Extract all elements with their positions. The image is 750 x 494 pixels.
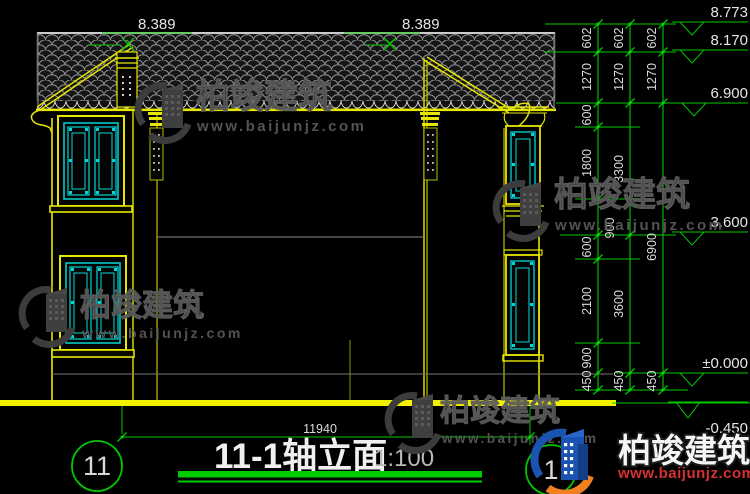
dim-value: 1800	[580, 149, 594, 177]
grid-bubble-label: 11	[83, 451, 111, 481]
elevation-value: 8.170	[710, 32, 748, 49]
brand-name: 柏竣建筑	[618, 432, 750, 469]
window-left-upper	[50, 116, 132, 212]
cad-elevation-drawing: 8.389 8.389	[0, 0, 750, 494]
dim-value: 600	[580, 105, 594, 126]
brand-url: www.baijunjz.com	[617, 465, 750, 482]
drawing-canvas: 8.389 8.389	[0, 0, 750, 494]
dim-value: 602	[580, 28, 594, 49]
dim-value: 450	[612, 371, 626, 392]
watermark-url: www.baijunjz.com	[554, 217, 724, 234]
elevation-value: 8.773	[710, 4, 748, 21]
dim-value: 1270	[612, 63, 626, 91]
total-width-value: 11940	[303, 422, 337, 436]
dim-value: 3600	[612, 290, 626, 318]
watermark-name: 柏竣建筑	[440, 394, 560, 428]
watermark-name: 柏竣建筑	[80, 288, 204, 323]
dim-value: 1270	[580, 63, 594, 91]
dim-value: 450	[580, 371, 594, 392]
ridge-dim-value: 8.389	[138, 16, 176, 33]
title-underline-thick	[178, 471, 482, 478]
watermark-url: www.baijunjz.com	[81, 325, 243, 341]
watermark-name: 柏竣建筑	[196, 77, 332, 116]
window-right-lower	[503, 250, 543, 361]
window-sill	[50, 206, 132, 212]
dim-value: 1270	[645, 63, 659, 91]
dim-value: 600	[580, 237, 594, 258]
watermark-url: www.baijunjz.com	[196, 118, 366, 135]
dim-value: 900	[580, 348, 594, 369]
dim-value: 6900	[645, 233, 659, 261]
dim-value: 2100	[580, 287, 594, 315]
title-underline-thin	[178, 481, 482, 483]
grid-bubble-label: 1	[543, 455, 558, 485]
left-ridge-ornament	[115, 52, 139, 107]
dim-value: 602	[612, 28, 626, 49]
watermark-name: 柏竣建筑	[554, 175, 690, 214]
elevation-value: ±0.000	[702, 355, 748, 372]
ridge-dim-value: 8.389	[402, 16, 440, 33]
dim-value: 450	[645, 371, 659, 392]
dim-value: 602	[645, 28, 659, 49]
window-sill	[52, 350, 134, 357]
elevation-value: 6.900	[710, 85, 748, 102]
drawing-title: 11-1轴立面	[214, 437, 387, 476]
